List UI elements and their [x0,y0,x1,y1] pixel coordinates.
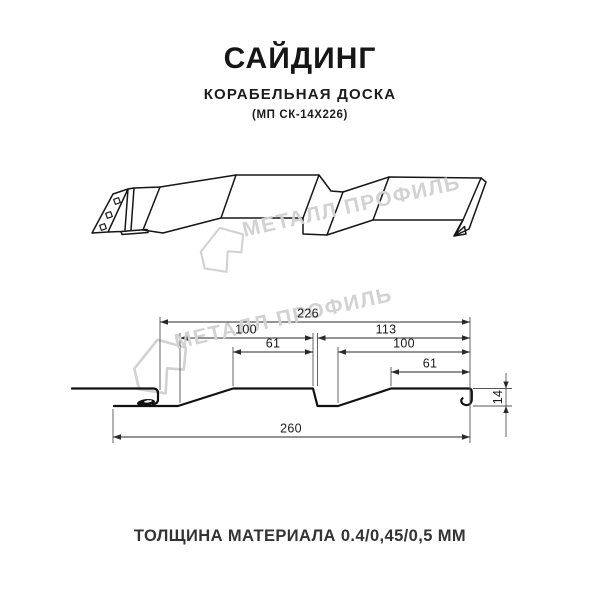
page-title: САЙДИНГ [0,44,600,74]
siding-section-view [72,389,472,407]
dim-total-width: 226 [297,308,319,321]
thickness-note: ТОЛЩИНА МАТЕРИАЛА 0.4/0,45/0,5 ММ [0,527,600,546]
product-subtitle: КОРАБЕЛЬНАЯ ДОСКА [0,86,600,103]
product-code: (МП СК-14Х226) [0,109,600,121]
product-drawing-page: САЙДИНГ КОРАБЕЛЬНАЯ ДОСКА (МП СК-14Х226)… [0,0,600,600]
dim-pitch-right: 113 [376,324,397,337]
dim-pitch-left: 100 [235,324,257,337]
dim-flat-left: 61 [266,338,281,351]
footer-note: ТОЛЩИНА МАТЕРИАЛА 0.4/0,45/0,5 ММ [0,527,600,546]
watermark-logo [129,223,250,399]
dimension-arrows [113,319,509,439]
dim-profile-height: 14 [492,390,505,405]
dim-overall-width: 260 [280,423,302,436]
dim-pitch-right-inner: 100 [393,338,415,351]
dim-flat-right: 61 [423,358,438,371]
title-block: САЙДИНГ КОРАБЕЛЬНАЯ ДОСКА (МП СК-14Х226) [0,44,600,121]
